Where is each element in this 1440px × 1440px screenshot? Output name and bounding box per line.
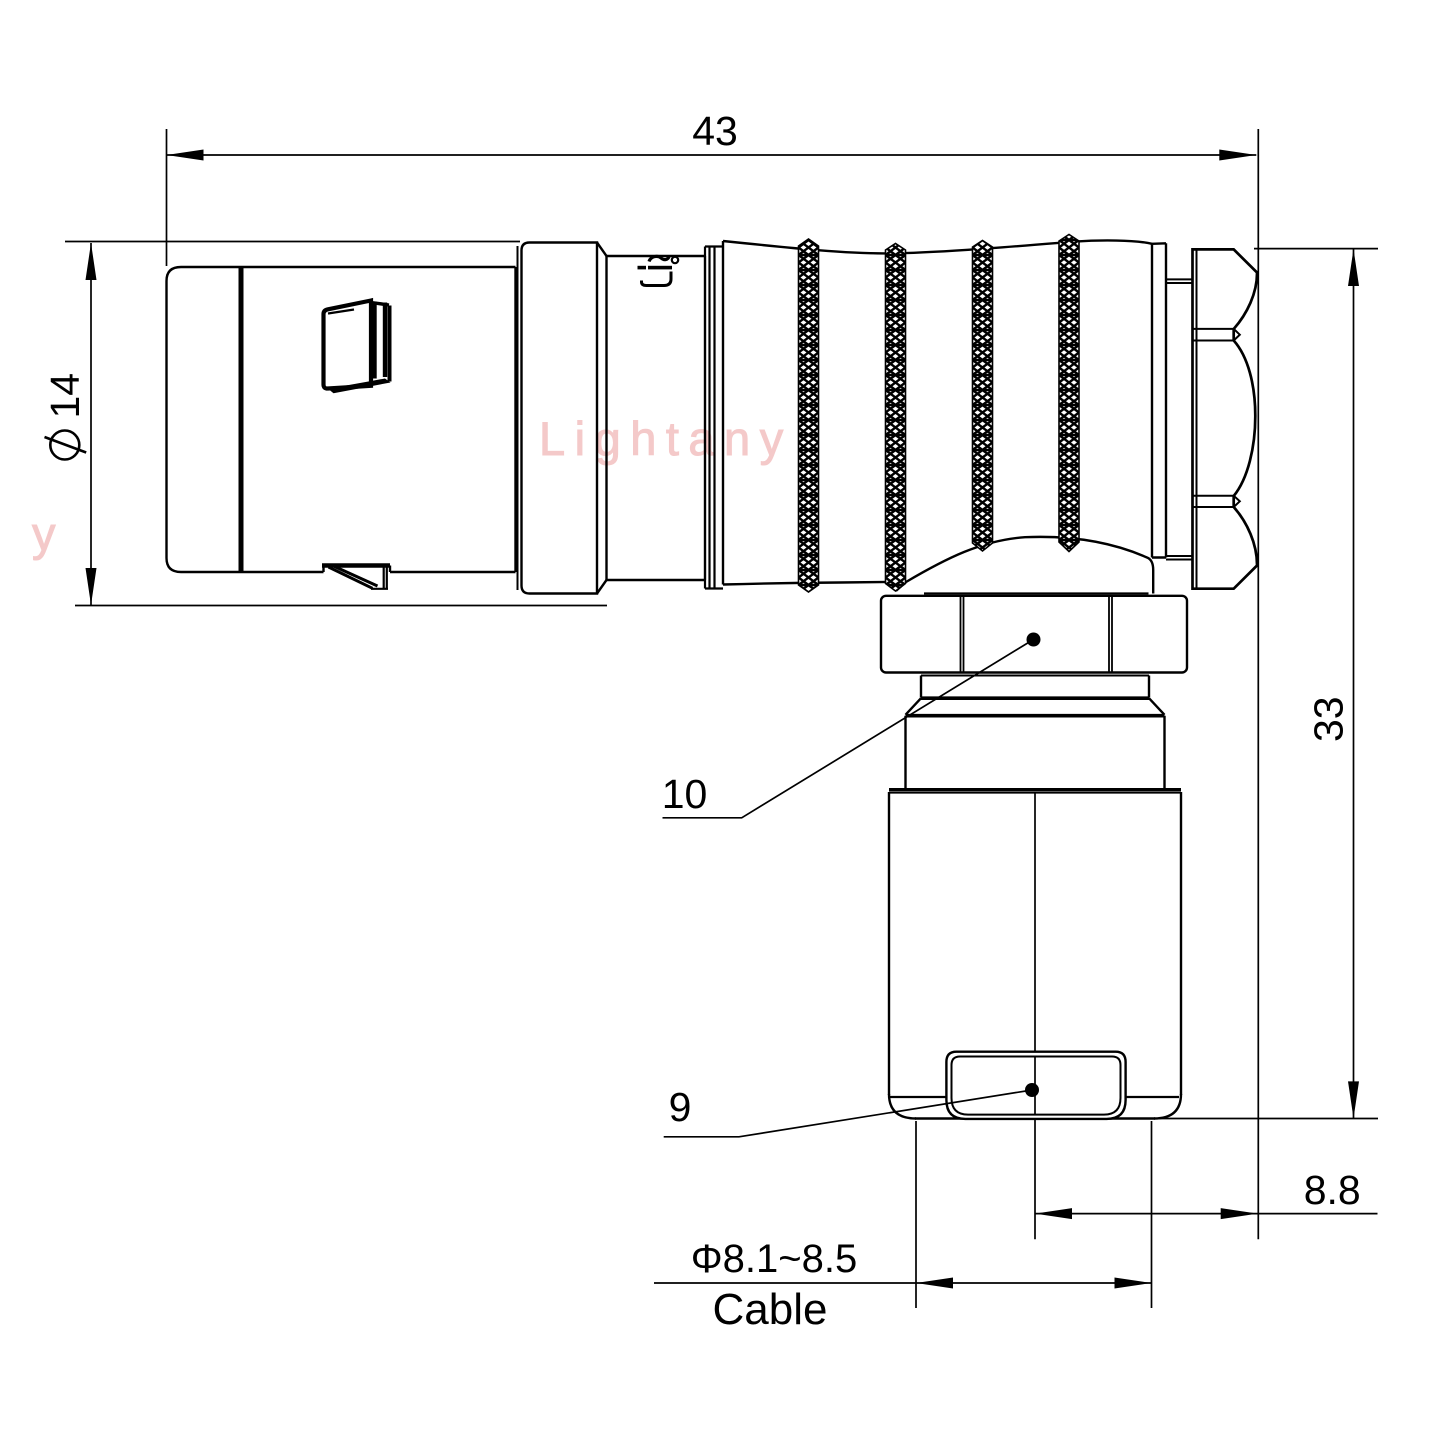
svg-text:Cable: Cable xyxy=(713,1285,828,1334)
svg-text:Lightany: Lightany xyxy=(539,412,793,465)
svg-text:8.8: 8.8 xyxy=(1304,1167,1361,1213)
svg-text:14: 14 xyxy=(42,373,88,419)
svg-text:43: 43 xyxy=(692,108,738,154)
svg-text:y: y xyxy=(32,507,56,560)
svg-text:9: 9 xyxy=(669,1084,692,1130)
svg-text:Φ8.1~8.5: Φ8.1~8.5 xyxy=(691,1237,857,1281)
svg-text:10: 10 xyxy=(662,771,708,817)
svg-text:33: 33 xyxy=(1306,696,1352,742)
